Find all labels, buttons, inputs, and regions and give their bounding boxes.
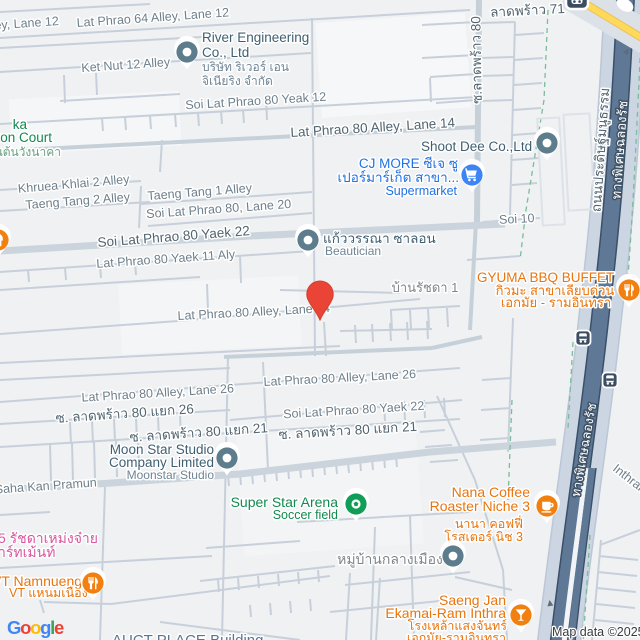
svg-text:นต้นวังนาคา: นต้นวังนาคา [0, 145, 61, 159]
svg-text:เปอร์มาร์เก็ต สาขา...: เปอร์มาร์เก็ต สาขา... [338, 168, 459, 185]
svg-text:าร์ทเม้นท์: าร์ทเม้นท์ [0, 544, 55, 560]
svg-text:หมู่บ้านกลางเมือง: หมู่บ้านกลางเมือง [337, 551, 443, 568]
svg-text:ซ.ลาดพร้าว 80: ซ.ลาดพร้าว 80 [468, 16, 485, 104]
svg-text:นานา คอฟฟี่: นานา คอฟฟี่ [455, 515, 523, 531]
svg-text:Map data ©2025: Map data ©2025 [552, 625, 640, 639]
svg-text:Beautician: Beautician [325, 244, 381, 258]
svg-text:จิเนียริง จำกัด: จิเนียริง จำกัด [202, 74, 273, 88]
svg-text:Roaster Niche 3: Roaster Niche 3 [430, 498, 531, 514]
svg-text:Soccer field: Soccer field [273, 508, 338, 522]
svg-text:Co., Ltd: Co., Ltd [202, 45, 249, 60]
svg-text:Google: Google [7, 617, 64, 638]
svg-text:VT แหนมเนือง: VT แหนมเนือง [9, 586, 88, 600]
svg-text:บ้านรัชดา 1: บ้านรัชดา 1 [392, 280, 459, 295]
svg-text:Soi 10: Soi 10 [499, 211, 535, 227]
svg-text:ton Court: ton Court [0, 130, 52, 145]
svg-text:Supermarket: Supermarket [385, 184, 457, 198]
svg-text:เอกมัย - รามอินทรา: เอกมัย - รามอินทรา [501, 295, 611, 310]
svg-text:River Engineering: River Engineering [202, 30, 309, 45]
svg-text:เอกมัย-รามอินทรา: เอกมัย-รามอินทรา [407, 631, 506, 640]
svg-text:Moonstar Studio: Moonstar Studio [127, 468, 215, 482]
svg-text:บริษัท ริเวอร์ เอน: บริษัท ริเวอร์ เอน [202, 60, 289, 74]
svg-text:Shoot Dee Co.,Ltd: Shoot Dee Co.,Ltd [421, 139, 532, 154]
svg-text:AUCT PLACE Building: AUCT PLACE Building [112, 632, 263, 640]
